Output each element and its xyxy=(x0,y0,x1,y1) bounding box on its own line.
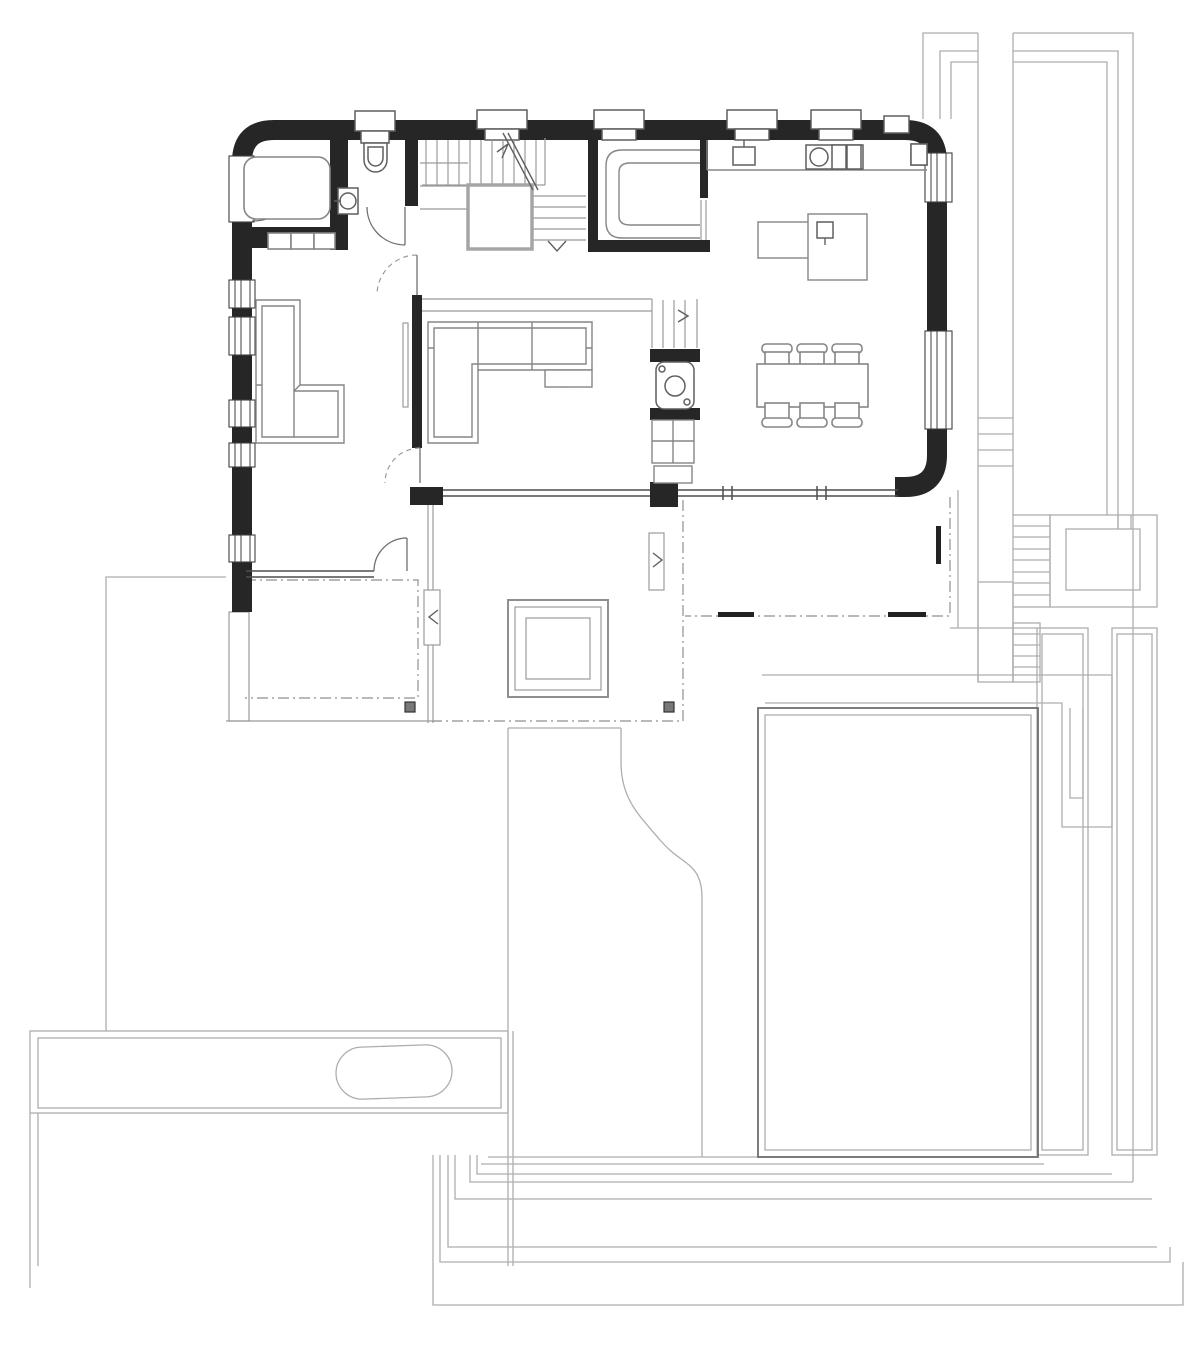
hall-to-leftroom-door xyxy=(377,255,417,295)
glass-mullion-ticks xyxy=(723,486,826,500)
right-terrace-roofline xyxy=(685,497,950,616)
cooktop xyxy=(806,145,863,169)
floor-drain-left xyxy=(405,702,415,712)
vehicle xyxy=(335,1044,453,1100)
stair-break-line xyxy=(503,133,538,190)
dining-chairs-bottom xyxy=(762,403,862,427)
floor-plan-canvas xyxy=(0,0,1195,1360)
retaining-ring-middle xyxy=(940,51,1118,529)
wall-utility-bottom xyxy=(650,408,700,420)
dining-set xyxy=(757,344,868,427)
utility-shelf xyxy=(652,420,694,483)
toilet xyxy=(355,111,395,172)
terrace-step-markers xyxy=(424,533,664,645)
driveway xyxy=(30,1031,508,1113)
living-to-leftroom-door xyxy=(385,448,420,483)
pool-side-walled-path xyxy=(762,675,1112,827)
utility-room xyxy=(652,362,694,483)
pantry-counter xyxy=(606,150,700,238)
dining-table xyxy=(757,364,868,407)
left-terrace-roofline xyxy=(245,580,418,698)
flue-box xyxy=(911,144,927,165)
kitchen-sink xyxy=(733,147,755,165)
bottom-band-2 xyxy=(448,1155,1157,1247)
hedge-strip-right xyxy=(1112,628,1157,1155)
stair-down-arrow xyxy=(548,241,566,251)
bottom-band-3 xyxy=(433,1155,1183,1305)
courtyard-path-stubs xyxy=(1118,515,1131,529)
leftroom-glass-wall xyxy=(246,571,374,577)
wall-corner-living xyxy=(410,487,443,505)
stair-risers-right xyxy=(532,185,586,250)
central-terrace-edge xyxy=(226,497,441,723)
floor-drain-center xyxy=(664,702,674,712)
entrance-mat xyxy=(244,157,330,219)
pool xyxy=(758,708,1038,1157)
terrace-sill-2 xyxy=(888,612,926,617)
property-boundary xyxy=(30,577,226,1288)
wall-corner-dining xyxy=(650,482,678,507)
hall-cabinets xyxy=(268,233,335,249)
wall-pantry-bottom xyxy=(588,240,710,252)
terrace-skylight xyxy=(508,600,608,697)
courtyard-inner xyxy=(1066,529,1140,590)
living-glass-wall xyxy=(443,490,650,496)
leftroom-terrace-door xyxy=(374,538,407,571)
dining-glass-wall xyxy=(678,490,898,496)
bottom-band-1 xyxy=(470,1155,1133,1182)
retaining-ring-inner xyxy=(951,62,1107,515)
kitchen-island xyxy=(758,214,867,280)
floor-plan-drawing xyxy=(0,0,1195,1360)
lower-wall-outline xyxy=(229,612,249,721)
exterior-stairs xyxy=(978,515,1050,682)
lawn-curved-edge xyxy=(508,728,702,1266)
stair-void xyxy=(468,185,532,249)
garden-path-edges xyxy=(978,33,1013,682)
pantry-opening xyxy=(701,200,706,240)
terraces xyxy=(226,497,950,723)
terrace-door-pivot xyxy=(936,526,941,564)
deck-bottom-lines xyxy=(481,1157,1044,1164)
wall-utility-top xyxy=(650,349,700,362)
wc-door xyxy=(367,207,405,245)
garden-path-steps xyxy=(978,418,1013,466)
glazing xyxy=(246,486,898,577)
central-terrace-roofline xyxy=(432,500,683,721)
living-sofa xyxy=(428,322,592,443)
wall-wc-right xyxy=(405,140,418,206)
wall-stair-pantry xyxy=(588,138,598,252)
wc-basin xyxy=(334,188,358,214)
kitchen-counter xyxy=(707,140,927,170)
hedge-strip-right-inner xyxy=(1117,634,1152,1150)
wall-leftroom-living xyxy=(412,295,422,448)
leftroom-sofa xyxy=(256,300,344,443)
terrace-sill-1 xyxy=(718,612,754,617)
